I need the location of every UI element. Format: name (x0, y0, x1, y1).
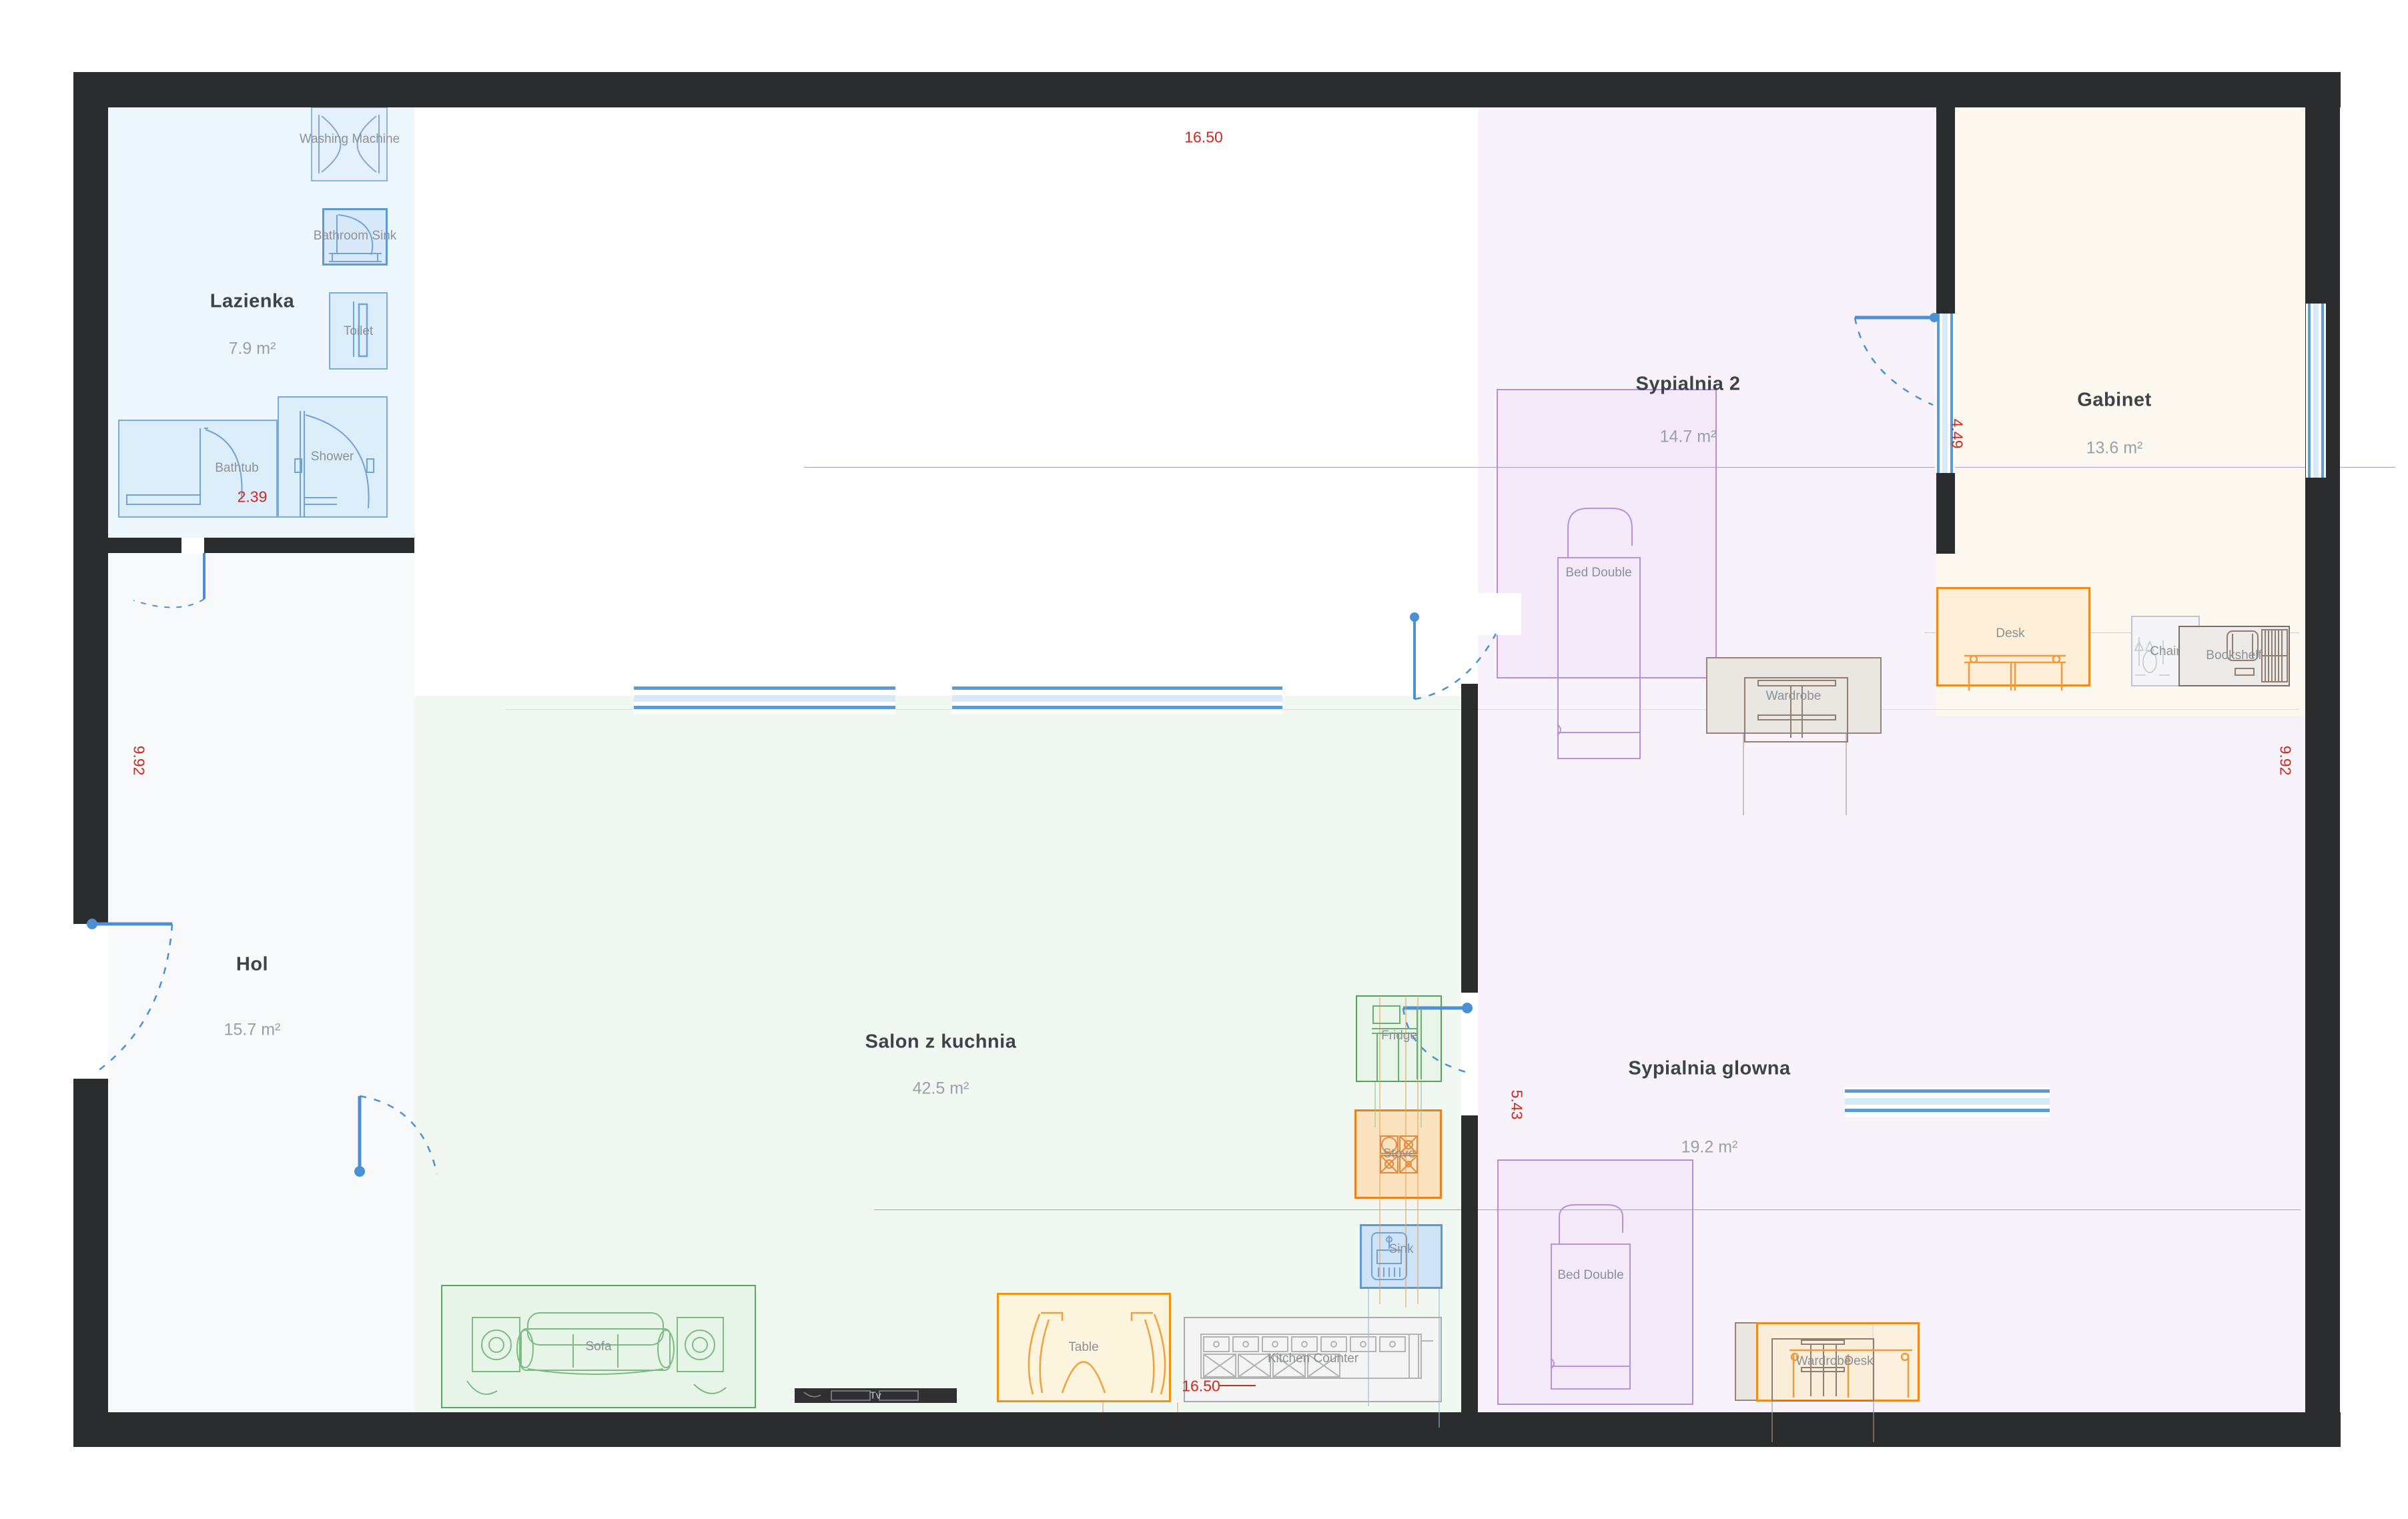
room-title-sypialnia2: Sypialnia 2 (1635, 374, 1740, 396)
toilet-label: Toilet (344, 324, 373, 339)
room-area-sypialnia2: 14.7 m² (1660, 428, 1717, 447)
fridge-icon (1372, 1006, 1421, 1081)
bathroom-sink-label: Bathroom Sink (314, 229, 397, 243)
chair-label: Chair (2150, 644, 2180, 659)
wardrobe-2-icon (1745, 678, 1848, 742)
wardrobe-main-label: Wardrobe (1796, 1354, 1852, 1369)
dimension-top: 16.50 (1184, 129, 1223, 147)
tv-icon (804, 1391, 918, 1400)
shower-icon (295, 411, 374, 518)
bookshelf-label: Bookshelf (2206, 648, 2261, 663)
room-title-lazienka: Lazienka (210, 291, 295, 313)
sypialnia2-gabinet-door-icon[interactable] (1855, 313, 1939, 405)
kitchen-sink-label: Sink (1389, 1242, 1414, 1257)
dimension-gabinet: 4.49 (1948, 419, 1966, 449)
room-title-salon: Salon z kuchnia (865, 1031, 1017, 1053)
sofa-label: Sofa (585, 1340, 611, 1354)
dimension-bathtub: 2.39 (238, 488, 268, 506)
room-area-salon: 42.5 m² (913, 1079, 969, 1099)
bed-double-2-icon (1557, 508, 1641, 735)
bathtub-label: Bathtub (215, 461, 259, 476)
floor-plan: Lazienka 7.9 m² Hol 15.7 m² Salon z kuch… (0, 0, 2408, 1519)
bed-double-main-label: Bed Double (1557, 1268, 1623, 1283)
washing-machine-label: Washing Machine (300, 132, 400, 147)
fridge-label: Fridge (1381, 1029, 1417, 1043)
room-area-gabinet: 13.6 m² (2086, 439, 2143, 458)
stove-label: Stove (1383, 1147, 1416, 1161)
desk-main-label: Desk (1844, 1354, 1873, 1369)
dimension-bottom: 16.50 (1182, 1378, 1220, 1396)
room-title-gabinet: Gabinet (2077, 390, 2151, 412)
dimension-sypialnia-glowna: 5.43 (1508, 1090, 1526, 1120)
table-label: Table (1068, 1340, 1098, 1355)
room-area-hol: 15.7 m² (224, 1021, 281, 1040)
hol-salon-door-icon[interactable] (354, 1096, 437, 1177)
desk-gabinet-label: Desk (1996, 626, 2024, 641)
dimension-left: 9.92 (130, 746, 148, 776)
entrance-door-icon[interactable] (87, 919, 172, 1073)
tv-label: Tv (870, 1390, 881, 1402)
desk-gabinet-icon (1964, 656, 2066, 690)
room-area-sypialnia-glowna: 19.2 m² (1681, 1138, 1738, 1157)
kitchen-counter-label: Kitchen Counter (1268, 1352, 1358, 1366)
selection-leader-lines (1103, 734, 1874, 1442)
plan-lineart (0, 0, 2408, 1519)
shower-label: Shower (311, 450, 354, 464)
dimension-right: 9.92 (2277, 746, 2295, 776)
wardrobe-2-label: Wardrobe (1766, 689, 1822, 704)
bed-double-2-label: Bed Double (1565, 566, 1631, 580)
room-title-hol: Hol (236, 954, 268, 976)
wardrobe-main-icon (1772, 1339, 1874, 1401)
room-area-lazienka: 7.9 m² (229, 340, 276, 359)
room-title-sypialnia-glowna: Sypialnia glowna (1628, 1058, 1790, 1080)
lazienka-door-icon[interactable] (133, 553, 204, 608)
sypialnia2-door-icon[interactable] (1410, 612, 1496, 699)
bed-double-main-icon (1551, 1205, 1631, 1369)
